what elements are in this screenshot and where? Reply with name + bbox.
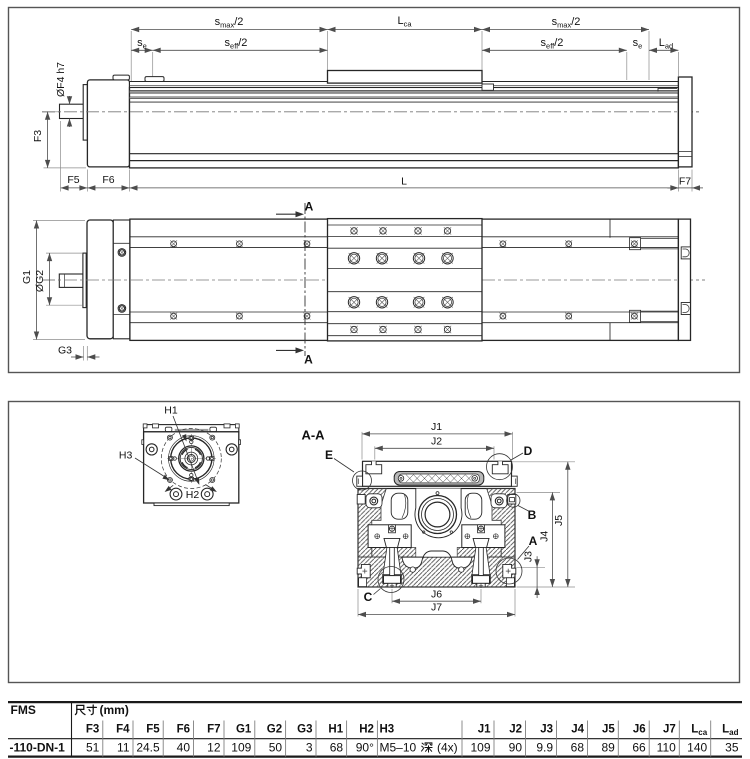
- svg-text:J7: J7: [663, 724, 676, 736]
- svg-text:H1: H1: [164, 405, 178, 417]
- svg-text:J3: J3: [523, 551, 535, 562]
- svg-text:90°: 90°: [356, 741, 374, 755]
- svg-text:J5: J5: [602, 724, 615, 736]
- svg-text:90: 90: [509, 741, 523, 755]
- svg-text:66: 66: [632, 741, 646, 755]
- svg-text:H3: H3: [119, 449, 133, 461]
- svg-text:M5–10: M5–10: [380, 741, 417, 755]
- svg-text:J1: J1: [478, 724, 491, 736]
- svg-text:140: 140: [687, 741, 707, 755]
- svg-text:F5: F5: [146, 724, 160, 736]
- svg-text:(mm): (mm): [100, 703, 129, 717]
- svg-text:FMS: FMS: [11, 703, 36, 717]
- svg-text:G3: G3: [297, 724, 312, 736]
- svg-text:A: A: [304, 352, 313, 366]
- svg-text:C: C: [364, 590, 373, 604]
- svg-text:F4: F4: [116, 724, 130, 736]
- svg-text:ØG2: ØG2: [34, 270, 46, 292]
- svg-text:110: 110: [657, 741, 676, 755]
- svg-text:H3: H3: [380, 724, 395, 736]
- svg-text:J6: J6: [633, 724, 646, 736]
- svg-text:J5: J5: [553, 515, 565, 526]
- svg-text:-110-DN-1: -110-DN-1: [10, 741, 66, 755]
- svg-text:40: 40: [177, 741, 191, 755]
- svg-text:J2: J2: [509, 724, 522, 736]
- svg-text:J4: J4: [539, 531, 551, 542]
- svg-text:G1: G1: [236, 724, 252, 736]
- svg-text:F3: F3: [32, 130, 44, 142]
- svg-text:35: 35: [725, 741, 739, 755]
- svg-text:A: A: [529, 534, 538, 548]
- svg-text:J6: J6: [431, 588, 442, 600]
- svg-text:H1: H1: [328, 724, 343, 736]
- svg-text:J1: J1: [431, 421, 442, 433]
- svg-text:3: 3: [306, 741, 313, 755]
- svg-text:109: 109: [470, 741, 490, 755]
- svg-text:11: 11: [117, 741, 130, 755]
- svg-text:F7: F7: [679, 176, 691, 188]
- svg-text:G1: G1: [21, 270, 33, 284]
- svg-text:F5: F5: [67, 174, 79, 186]
- svg-text:89: 89: [601, 741, 615, 755]
- svg-text:F6: F6: [102, 174, 114, 186]
- svg-text:51: 51: [86, 741, 100, 755]
- svg-text:A: A: [305, 200, 314, 214]
- svg-text:B: B: [528, 508, 537, 522]
- svg-text:H2: H2: [186, 489, 200, 501]
- svg-text:J3: J3: [540, 724, 553, 736]
- svg-text:F7: F7: [207, 724, 220, 736]
- svg-text:68: 68: [330, 741, 344, 755]
- svg-text:ØF4 h7: ØF4 h7: [55, 62, 67, 97]
- svg-text:F3: F3: [86, 724, 99, 736]
- svg-text:68: 68: [571, 741, 585, 755]
- svg-text:24.5: 24.5: [136, 741, 160, 755]
- svg-text:J7: J7: [431, 602, 442, 614]
- svg-text:F6: F6: [177, 724, 190, 736]
- svg-text:A-A: A-A: [301, 428, 325, 443]
- svg-text:J4: J4: [571, 724, 584, 736]
- svg-text:J2: J2: [431, 435, 442, 447]
- svg-text:G2: G2: [267, 724, 282, 736]
- svg-text:D: D: [524, 444, 533, 458]
- svg-text:(4x): (4x): [437, 741, 458, 755]
- svg-text:E: E: [325, 448, 333, 462]
- svg-text:109: 109: [231, 741, 251, 755]
- svg-text:L: L: [401, 176, 407, 188]
- svg-text:12: 12: [207, 741, 221, 755]
- svg-text:50: 50: [269, 741, 283, 755]
- svg-text:9.9: 9.9: [536, 741, 553, 755]
- svg-text:G3: G3: [58, 345, 72, 357]
- svg-text:H2: H2: [359, 724, 374, 736]
